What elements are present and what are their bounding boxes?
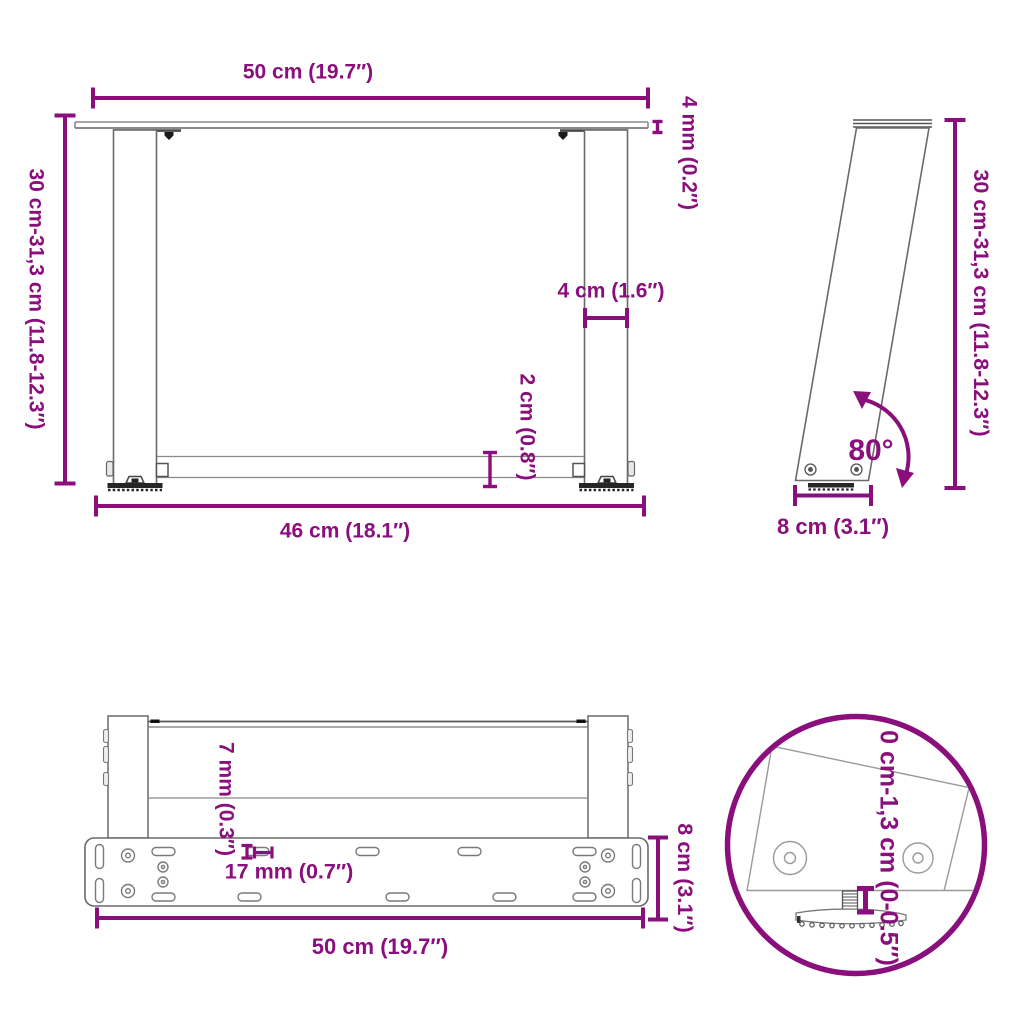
dim-top-plate-depth: 8 cm (3.1″) xyxy=(673,823,695,932)
dim-detail-adjustable-range: 0 cm-1,3 cm (0-0.5″) xyxy=(876,730,901,966)
slanted-leg xyxy=(796,128,930,481)
dim-side-angle: 80° xyxy=(848,436,893,466)
diagram-canvas: 50 cm (19.7″) 4 mm (0.2″) 30 cm-31,3 cm … xyxy=(0,0,1024,1024)
detail-view-drawing xyxy=(728,717,991,974)
side-foot xyxy=(808,483,854,490)
plan-right-leg xyxy=(588,716,628,838)
dim-front-width-top: 50 cm (19.7″) xyxy=(243,62,373,83)
crossbar-clip xyxy=(573,464,585,477)
top-view-drawing xyxy=(85,716,668,929)
dim-front-top-thickness: 4 mm (0.2″) xyxy=(679,96,700,210)
dim-front-crossbar-height: 2 cm (0.8″) xyxy=(517,374,538,481)
right-leg xyxy=(585,130,628,484)
detail-circle-border xyxy=(728,717,985,974)
side-top-plate xyxy=(853,120,932,127)
diagram-line-art xyxy=(0,0,1024,1024)
detail-screws xyxy=(774,842,934,875)
plan-leg-tabs xyxy=(104,730,633,786)
dim-side-base-depth: 8 cm (3.1″) xyxy=(777,516,889,538)
tabletop xyxy=(75,122,648,128)
dim-side-height-range: 30 cm-31,3 cm (11.8-12.3″) xyxy=(969,169,991,436)
plan-left-leg xyxy=(108,716,148,838)
screw-mark xyxy=(151,720,160,724)
dim-top-slot-length: 17 mm (0.7″) xyxy=(225,861,354,883)
dim-top-hole-diameter: 7 mm (0.3″) xyxy=(216,742,237,856)
dim-front-leg-width: 4 cm (1.6″) xyxy=(558,281,665,302)
screw-mark xyxy=(577,720,586,724)
screw-icon xyxy=(559,132,568,140)
screw-icon xyxy=(165,132,174,140)
left-leg xyxy=(114,130,157,484)
detail-contents xyxy=(747,743,990,928)
dim-front-height-range: 30 cm-31,3 cm (11.8-12.3″) xyxy=(26,168,47,429)
detail-tick xyxy=(857,889,874,913)
arrow-down-icon xyxy=(896,468,914,488)
dim-top-plate-width: 50 cm (19.7″) xyxy=(312,936,449,958)
front-small-ticks xyxy=(483,122,663,487)
dim-front-inner-width: 46 cm (18.1″) xyxy=(280,521,410,542)
crossbar-clip xyxy=(157,464,169,477)
